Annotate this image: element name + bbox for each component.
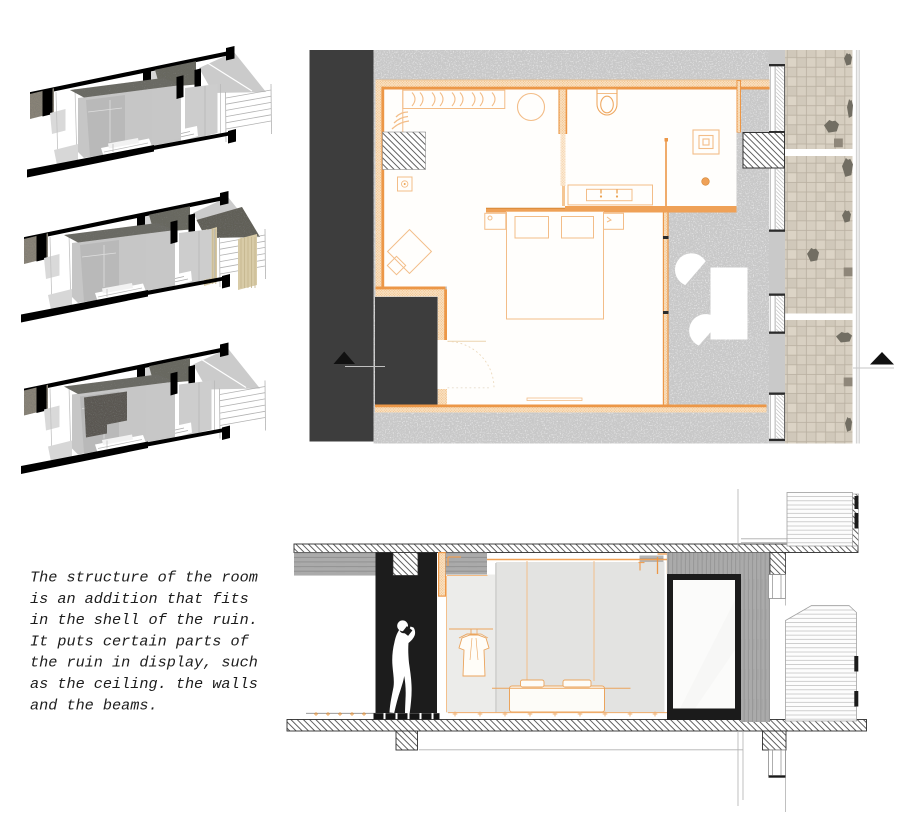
svg-text:It puts certain parts of: It puts certain parts of [30, 632, 250, 650]
svg-text:and the beams.: and the beams. [30, 696, 158, 714]
svg-text:the ruin in display, such: the ruin in display, such [30, 654, 258, 672]
svg-text:The structure of the room: The structure of the room [30, 569, 258, 587]
svg-text:is an addition that fits: is an addition that fits [30, 590, 249, 608]
svg-text:as the ceiling. the walls: as the ceiling. the walls [30, 675, 258, 693]
svg-text:in the shell of the ruin.: in the shell of the ruin. [30, 611, 258, 629]
